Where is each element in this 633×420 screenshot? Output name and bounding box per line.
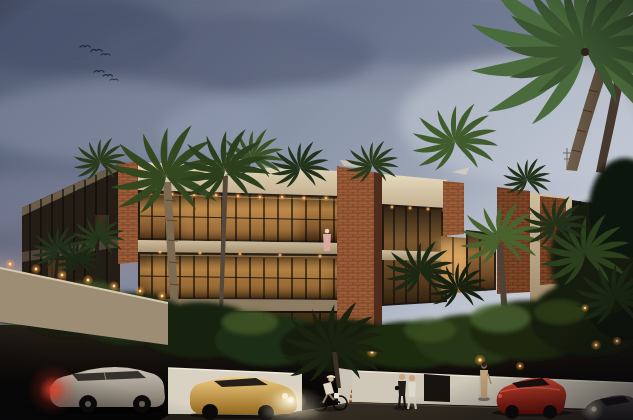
architectural-rendering: [0, 0, 633, 420]
vignette: [0, 0, 633, 420]
